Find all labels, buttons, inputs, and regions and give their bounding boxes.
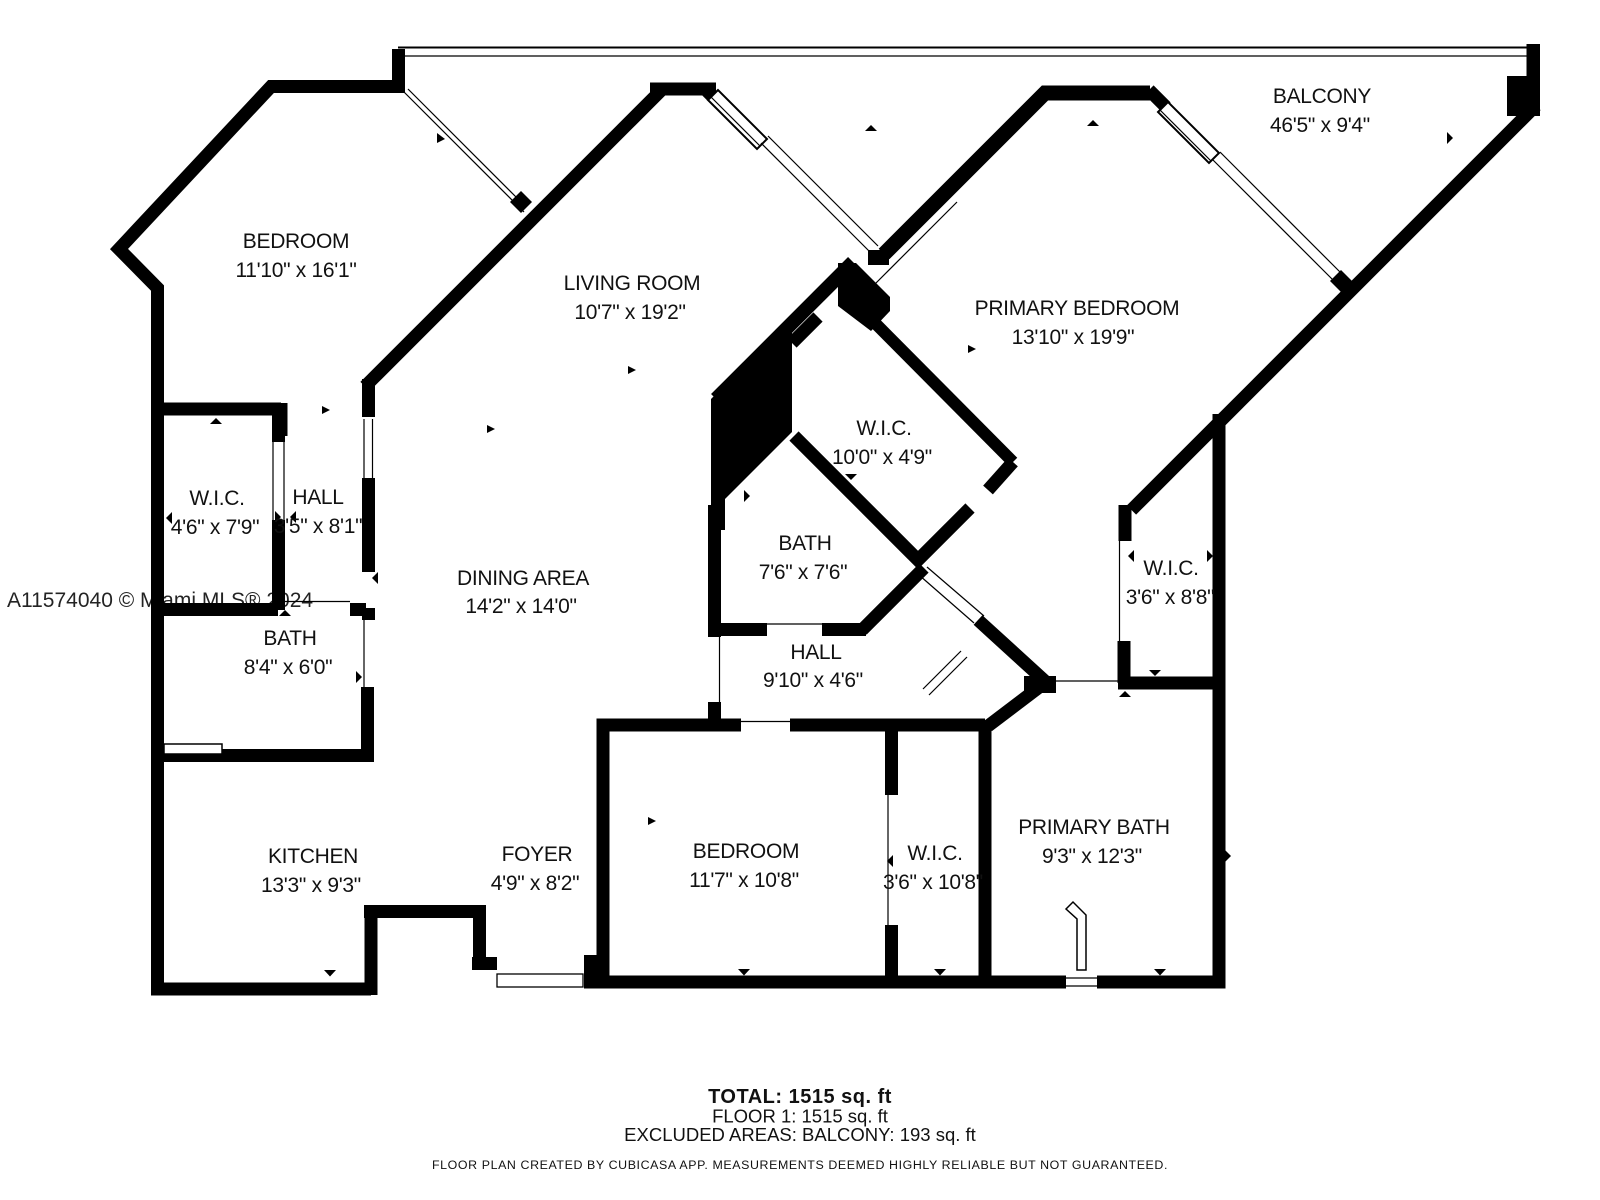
svg-text:BATH: BATH bbox=[778, 532, 831, 555]
svg-text:FLOOR PLAN CREATED BY CUBICASA: FLOOR PLAN CREATED BY CUBICASA APP. MEAS… bbox=[432, 1158, 1168, 1172]
svg-text:11'10" x 16'1": 11'10" x 16'1" bbox=[235, 259, 356, 282]
svg-text:46'5" x 9'4": 46'5" x 9'4" bbox=[1270, 114, 1370, 137]
svg-text:W.I.C.: W.I.C. bbox=[189, 487, 244, 510]
svg-text:13'10" x 19'9": 13'10" x 19'9" bbox=[1012, 326, 1135, 349]
svg-text:BATH: BATH bbox=[263, 627, 316, 650]
svg-text:BEDROOM: BEDROOM bbox=[693, 840, 799, 863]
svg-text:DINING AREA: DINING AREA bbox=[457, 567, 589, 590]
svg-text:W.I.C.: W.I.C. bbox=[907, 842, 962, 865]
svg-text:14'2" x 14'0": 14'2" x 14'0" bbox=[465, 595, 576, 618]
svg-text:PRIMARY BEDROOM: PRIMARY BEDROOM bbox=[975, 297, 1180, 320]
svg-text:HALL: HALL bbox=[790, 641, 841, 664]
svg-text:W.I.C.: W.I.C. bbox=[856, 417, 911, 440]
svg-text:PRIMARY BATH: PRIMARY BATH bbox=[1018, 816, 1170, 839]
svg-text:4'9" x 8'2": 4'9" x 8'2" bbox=[491, 872, 580, 895]
svg-text:4'6" x 7'9": 4'6" x 7'9" bbox=[171, 516, 260, 539]
svg-text:HALL: HALL bbox=[292, 486, 343, 509]
svg-text:13'3" x 9'3": 13'3" x 9'3" bbox=[261, 874, 361, 897]
svg-text:LIVING ROOM: LIVING ROOM bbox=[564, 272, 701, 295]
svg-text:FOYER: FOYER bbox=[502, 843, 573, 866]
svg-text:10'0" x 4'9": 10'0" x 4'9" bbox=[832, 446, 932, 469]
svg-text:BEDROOM: BEDROOM bbox=[243, 230, 349, 253]
svg-text:KITCHEN: KITCHEN bbox=[268, 845, 358, 868]
svg-text:7'6" x 7'6": 7'6" x 7'6" bbox=[759, 561, 848, 584]
svg-text:9'10" x 4'6": 9'10" x 4'6" bbox=[763, 669, 863, 692]
svg-text:EXCLUDED AREAS: BALCONY: 193 s: EXCLUDED AREAS: BALCONY: 193 sq. ft bbox=[624, 1124, 976, 1145]
svg-text:3'5" x 8'1": 3'5" x 8'1" bbox=[274, 515, 363, 538]
svg-text:W.I.C.: W.I.C. bbox=[1143, 557, 1198, 580]
svg-text:3'6" x 10'8": 3'6" x 10'8" bbox=[883, 871, 983, 894]
svg-text:9'3" x 12'3": 9'3" x 12'3" bbox=[1042, 845, 1142, 868]
svg-text:BALCONY: BALCONY bbox=[1273, 85, 1372, 108]
svg-text:10'7" x 19'2": 10'7" x 19'2" bbox=[574, 301, 685, 324]
svg-text:11'7" x 10'8": 11'7" x 10'8" bbox=[689, 869, 799, 892]
svg-text:8'4" x 6'0": 8'4" x 6'0" bbox=[244, 656, 333, 679]
svg-text:3'6" x 8'8": 3'6" x 8'8" bbox=[1126, 586, 1215, 609]
